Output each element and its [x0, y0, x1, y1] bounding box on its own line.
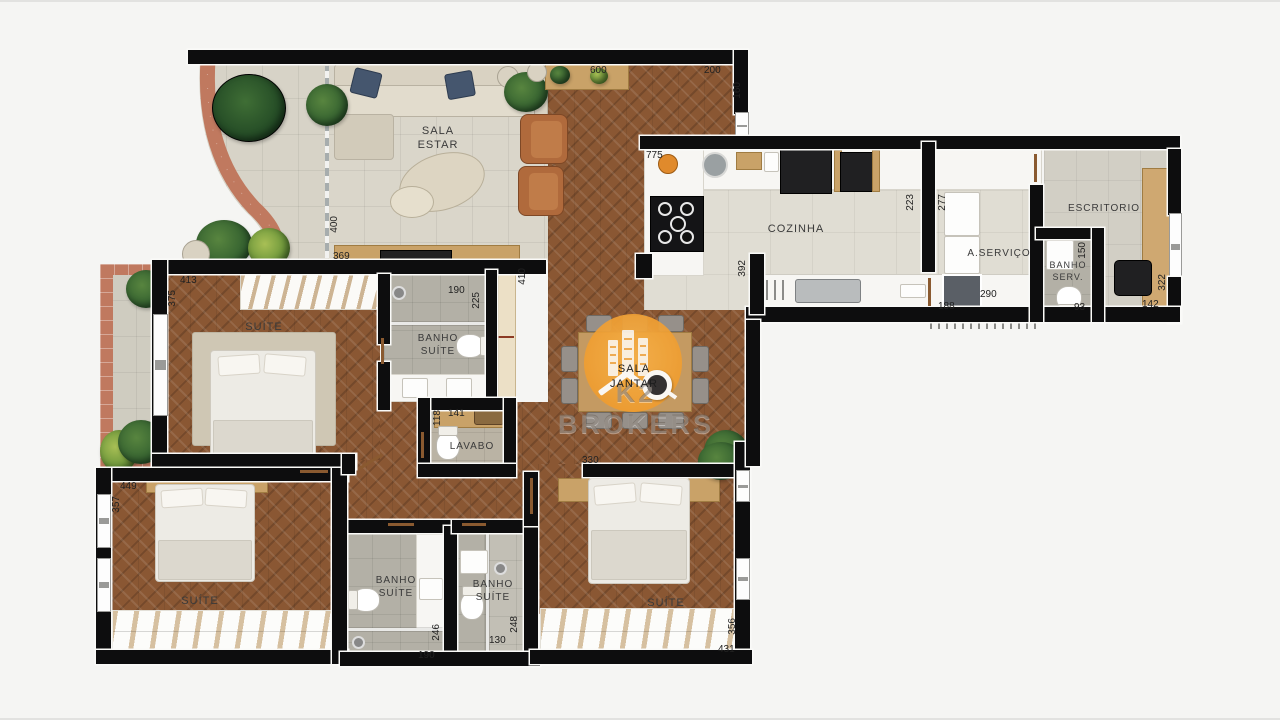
blanket — [158, 540, 252, 580]
nightstand — [558, 478, 590, 502]
blanket — [591, 530, 687, 580]
window — [97, 494, 111, 548]
wall — [583, 464, 749, 477]
office-chair — [1114, 260, 1152, 296]
window — [736, 470, 750, 502]
room-label-suite-2: SUÍTE — [172, 594, 228, 608]
vanity-sink — [402, 378, 428, 398]
dim-label: 330 — [582, 456, 599, 466]
palm-plant — [212, 74, 286, 142]
hall-cabinet — [498, 274, 516, 402]
shower-glass — [346, 628, 444, 631]
dim-label: 775 — [646, 151, 663, 161]
door — [530, 478, 533, 514]
wall — [96, 650, 348, 664]
dining-chair — [561, 346, 578, 372]
closet-rack — [240, 274, 382, 310]
island-sink — [795, 279, 861, 303]
wall — [746, 320, 760, 466]
floor-plan: K2 BROKERS — [0, 0, 1280, 720]
pillow — [263, 353, 307, 377]
room-label-escritorio: ESCRITORIO — [1064, 202, 1144, 215]
oven-cabinet-side — [872, 150, 880, 192]
shower-glass — [386, 322, 488, 325]
dim-label: 93 — [1074, 303, 1085, 313]
pillow — [204, 488, 247, 509]
room-label-a-servico: A.SERVIÇO — [962, 247, 1036, 260]
burner — [680, 230, 694, 244]
dim-label: 246 — [432, 624, 442, 641]
dim-label: 248 — [510, 616, 520, 633]
cutting-board — [900, 284, 926, 298]
window — [1169, 213, 1182, 281]
room-label-suite-1: SUÍTE — [236, 320, 292, 334]
wall — [418, 464, 516, 477]
dim-label: 356 — [728, 618, 738, 635]
window — [97, 558, 111, 612]
dim-label: 413 — [180, 276, 197, 286]
vanity-sink — [460, 550, 488, 574]
room-label-lavabo: LAVABO — [444, 440, 500, 453]
small-appliance — [764, 152, 779, 172]
suite3-deck — [540, 608, 740, 654]
room-label-banho-suite-3: BANHO SUÍTE — [464, 578, 522, 604]
dim-label: 600 — [590, 66, 607, 76]
wall — [332, 520, 460, 533]
window — [153, 314, 168, 416]
oven — [840, 152, 874, 192]
dim-label: 118 — [433, 410, 443, 426]
wall — [444, 526, 457, 664]
dim-label: 410 — [518, 268, 528, 285]
tv — [380, 250, 452, 260]
dim-label: 150 — [1078, 242, 1088, 259]
window — [736, 558, 750, 600]
wall — [332, 468, 347, 664]
suite2-deck — [112, 610, 338, 652]
dim-label: 375 — [168, 290, 178, 307]
wall — [640, 136, 1180, 149]
wall — [424, 398, 516, 410]
decor-bowl — [527, 62, 547, 82]
burner — [670, 216, 686, 232]
dim-label: 431 — [718, 645, 735, 655]
refrigerator — [780, 148, 832, 194]
dish-rack — [766, 280, 788, 300]
dim-label: 357 — [112, 496, 122, 513]
shower-head-icon — [392, 286, 406, 300]
coffee-side-table — [390, 186, 434, 218]
room-label-suite-3: SUÍTE — [638, 596, 694, 610]
door — [462, 523, 486, 526]
round-sink — [702, 152, 728, 178]
wall — [342, 454, 355, 474]
door — [300, 470, 328, 473]
door — [421, 432, 424, 458]
wall — [922, 142, 935, 272]
wall — [378, 362, 390, 410]
dim-label: 141 — [448, 409, 465, 419]
wall — [486, 270, 497, 410]
room-label-banho-suite-1: BANHO SUÍTE — [408, 332, 468, 358]
dining-chair — [692, 346, 709, 372]
dim-label: 142 — [1142, 300, 1159, 310]
door — [381, 338, 384, 364]
room-label-cozinha: COZINHA — [758, 222, 834, 236]
wall — [1168, 149, 1181, 215]
wall — [524, 526, 538, 664]
toilet-tank — [438, 426, 458, 436]
pillow — [593, 482, 637, 506]
dim-label: 160 — [733, 82, 743, 99]
wall — [340, 652, 540, 666]
room-label-banho-suite-2: BANHO SUÍTE — [366, 574, 426, 600]
wall — [750, 254, 764, 314]
door — [928, 278, 931, 306]
wall — [1036, 228, 1100, 239]
room-label-sala-estar: SALA ESTAR — [400, 124, 476, 153]
plant — [306, 84, 348, 126]
dim-label: 400 — [330, 216, 340, 233]
leather-armchair — [518, 166, 564, 216]
dim-label: 449 — [120, 482, 137, 492]
burner — [680, 202, 694, 216]
wall — [188, 50, 748, 64]
sofa-pillow — [444, 70, 476, 100]
dim-label: 392 — [738, 260, 748, 277]
dim-label: 322 — [1158, 274, 1168, 291]
sofa-chaise — [334, 114, 394, 160]
door — [1034, 154, 1037, 182]
dim-label: 369 — [333, 252, 350, 262]
wall — [636, 254, 652, 278]
wall — [746, 307, 1180, 322]
plant — [550, 66, 570, 84]
pillow — [160, 488, 203, 509]
dim-label: 290 — [980, 290, 997, 300]
shower-head-icon — [352, 636, 365, 649]
toilet-tank — [348, 590, 358, 610]
decor-basket — [736, 152, 762, 170]
shower-head-icon — [494, 562, 507, 575]
dim-label: 130 — [489, 636, 506, 646]
pillow — [639, 482, 683, 506]
room-label-sala-jantar: SALA JANTAR — [604, 362, 664, 392]
leather-armchair — [520, 114, 568, 164]
dim-label: 190 — [418, 651, 435, 661]
dim-label: 200 — [704, 66, 721, 76]
dim-label: 190 — [448, 286, 465, 296]
dim-label: 277 — [938, 194, 948, 211]
dim-label: 188 — [938, 302, 955, 312]
wall — [152, 454, 356, 469]
lavabo-basin — [474, 409, 504, 425]
door — [388, 523, 414, 526]
washer — [944, 192, 980, 236]
pillow — [217, 354, 260, 377]
room-label-banho-serv: BANHO SERV. — [1042, 260, 1094, 283]
dim-label: 223 — [906, 194, 916, 211]
burner — [658, 230, 672, 244]
dim-label: 225 — [472, 292, 482, 309]
wall — [378, 274, 390, 344]
vanity-sink — [446, 378, 472, 398]
nightstand — [688, 478, 720, 502]
cabinet-divider — [498, 336, 514, 338]
burner — [658, 202, 672, 216]
